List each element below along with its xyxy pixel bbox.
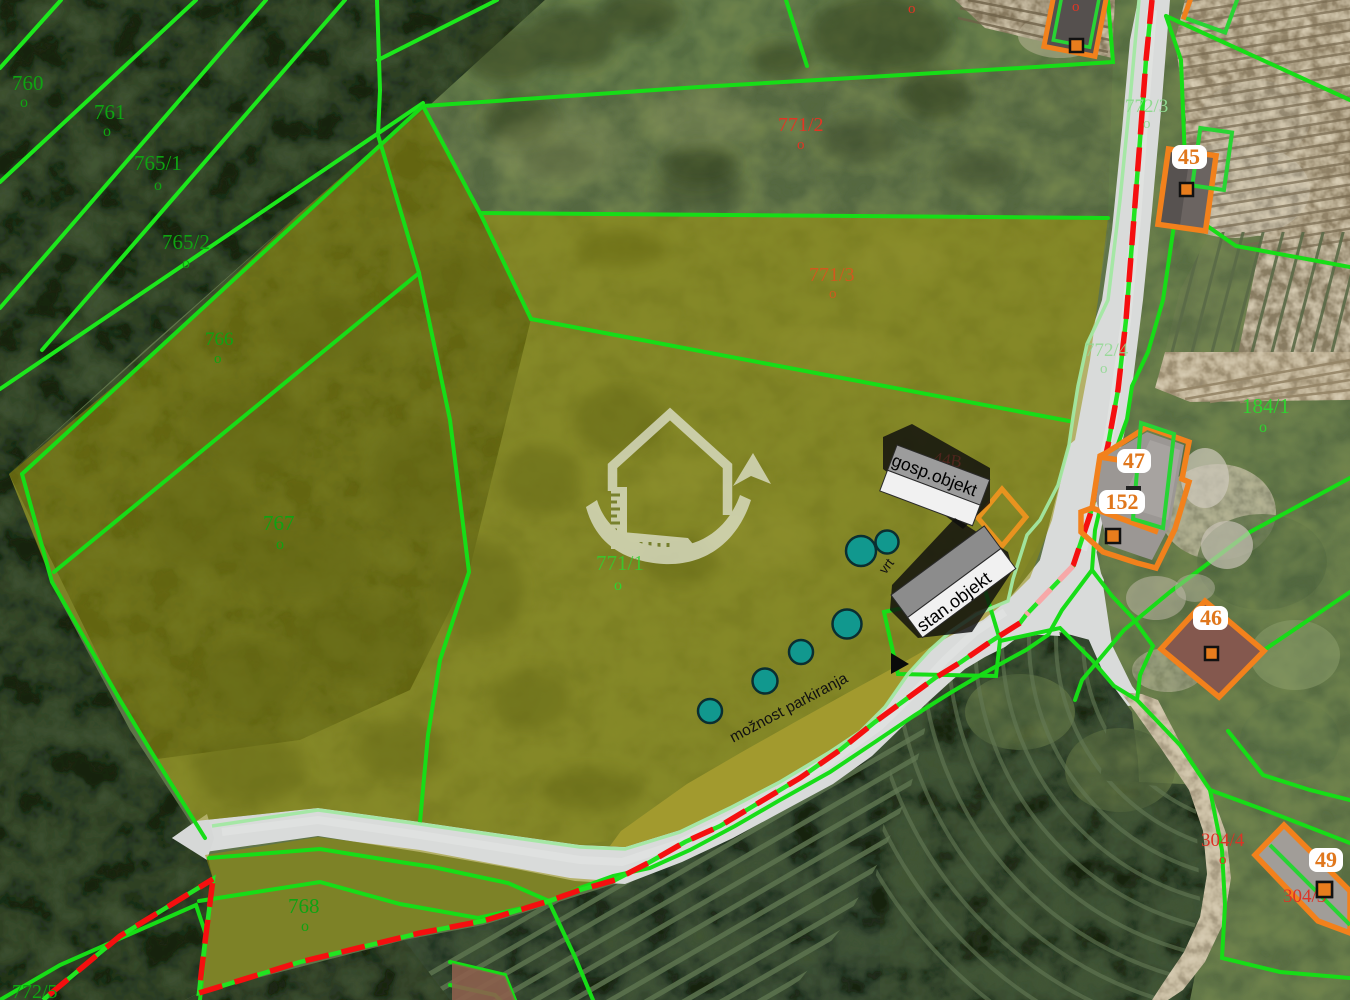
svg-text:o: o <box>301 918 309 935</box>
svg-text:772/3: 772/3 <box>1125 96 1168 117</box>
svg-text:o: o <box>20 94 28 111</box>
svg-text:o: o <box>182 255 190 272</box>
svg-text:304/4: 304/4 <box>1201 830 1245 851</box>
svg-text:o: o <box>276 536 284 553</box>
svg-text:o: o <box>614 577 622 594</box>
svg-text:766: 766 <box>205 329 234 350</box>
svg-text:o: o <box>214 351 222 367</box>
svg-text:o: o <box>1219 852 1227 868</box>
svg-text:o: o <box>103 123 111 140</box>
svg-text:771/1: 771/1 <box>596 551 644 575</box>
svg-text:o: o <box>908 1 916 17</box>
svg-text:49: 49 <box>1315 847 1337 872</box>
svg-text:o: o <box>829 286 837 302</box>
svg-text:768: 768 <box>288 894 320 918</box>
svg-text:o: o <box>1100 361 1108 377</box>
svg-text:184/1: 184/1 <box>1242 394 1290 418</box>
svg-text:o: o <box>154 177 162 194</box>
svg-text:46: 46 <box>1200 605 1222 630</box>
svg-text:772/5: 772/5 <box>12 981 58 1000</box>
svg-text:o: o <box>1259 419 1267 436</box>
svg-text:765/1: 765/1 <box>134 151 182 175</box>
svg-text:771/2: 771/2 <box>778 114 824 136</box>
svg-text:o: o <box>1072 0 1080 15</box>
svg-text:761: 761 <box>94 100 126 124</box>
svg-text:47: 47 <box>1123 448 1145 473</box>
svg-text:45: 45 <box>1178 144 1200 169</box>
svg-text:o: o <box>1143 116 1151 132</box>
svg-text:772/4: 772/4 <box>1085 340 1129 361</box>
svg-text:152: 152 <box>1106 489 1139 514</box>
svg-text:o: o <box>797 137 805 153</box>
svg-text:771/3: 771/3 <box>809 264 855 286</box>
svg-text:767: 767 <box>263 511 295 535</box>
svg-text:760: 760 <box>12 71 44 95</box>
svg-text:765/2: 765/2 <box>162 230 210 254</box>
